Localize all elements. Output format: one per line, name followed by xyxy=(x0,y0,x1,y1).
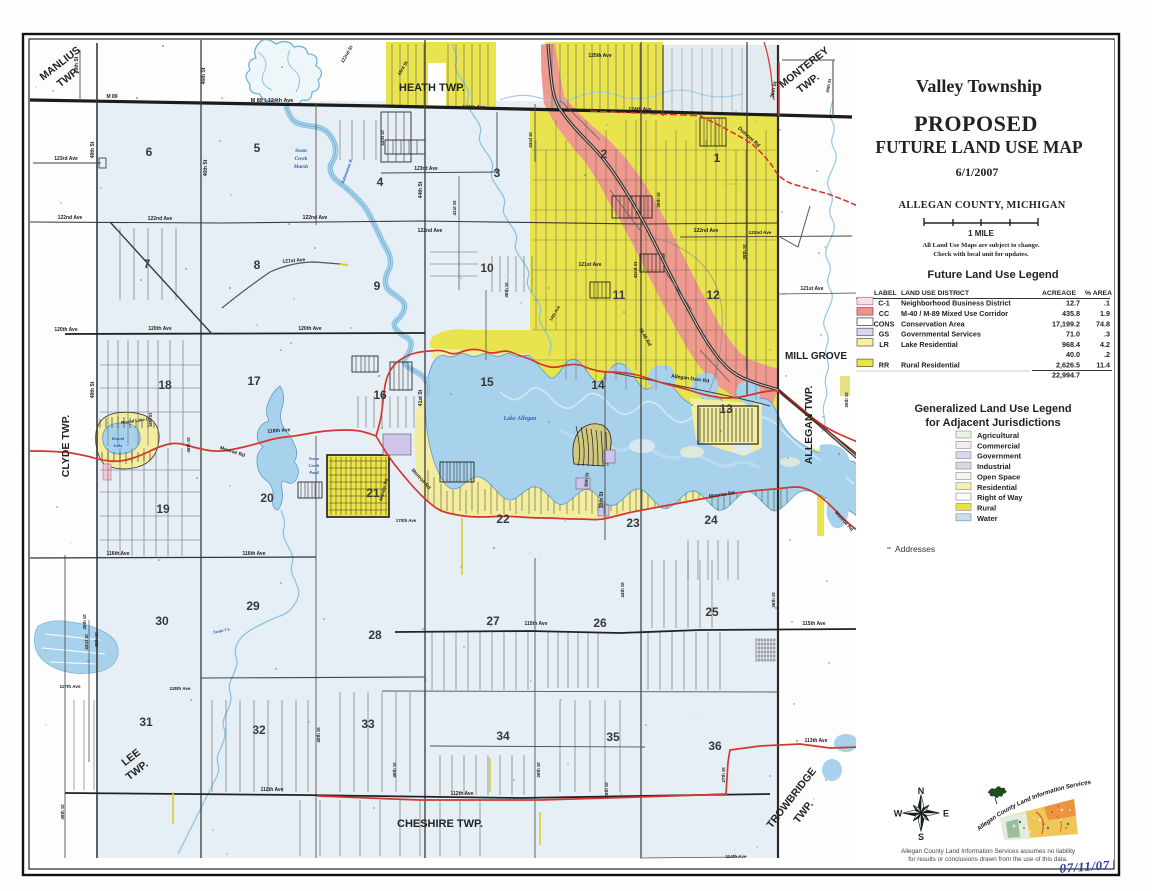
svg-text:40th St: 40th St xyxy=(504,282,509,298)
svg-text:46th St: 46th St xyxy=(201,67,207,84)
svg-text:ALLEGAN TWP.: ALLEGAN TWP. xyxy=(803,386,815,465)
svg-text:12: 12 xyxy=(706,288,720,302)
svg-text:Creek: Creek xyxy=(309,463,321,468)
svg-text:42nd St: 42nd St xyxy=(633,261,638,278)
svg-text:11.4: 11.4 xyxy=(1096,361,1110,370)
svg-text:122nd Ave: 122nd Ave xyxy=(148,216,173,222)
svg-text:M 89 L124th Ave: M 89 L124th Ave xyxy=(251,98,294,104)
svg-text:122nd Ave: 122nd Ave xyxy=(749,230,772,235)
svg-text:LR: LR xyxy=(879,340,889,349)
svg-text:20: 20 xyxy=(260,491,274,505)
svg-text:C-1: C-1 xyxy=(878,299,890,308)
svg-text:19: 19 xyxy=(156,502,170,516)
svg-text:37th St: 37th St xyxy=(721,767,726,783)
svg-text:123rd Ave: 123rd Ave xyxy=(414,166,438,172)
svg-text:34: 34 xyxy=(496,729,510,743)
svg-text:43rd St: 43rd St xyxy=(380,130,385,146)
svg-text:4: 4 xyxy=(377,175,384,189)
svg-text:RR: RR xyxy=(879,361,890,370)
svg-text:for Adjacent Jurisdictions: for Adjacent Jurisdictions xyxy=(925,417,1060,429)
svg-text:15: 15 xyxy=(480,375,494,389)
svg-text:40th St: 40th St xyxy=(316,727,321,743)
svg-text:ACREAGE: ACREAGE xyxy=(1042,290,1076,297)
svg-text:Pond: Pond xyxy=(309,470,319,475)
svg-text:45th St: 45th St xyxy=(82,614,87,630)
svg-text:E: E xyxy=(943,809,949,819)
svg-text:Round: Round xyxy=(112,436,125,441)
svg-text:17,199.2: 17,199.2 xyxy=(1052,319,1080,328)
svg-text:6/1/2007: 6/1/2007 xyxy=(956,165,999,179)
svg-text:71.0: 71.0 xyxy=(1066,330,1080,339)
svg-text:Swan: Swan xyxy=(309,456,320,461)
svg-text:121st Ave: 121st Ave xyxy=(579,262,602,268)
svg-text:Generalized Land Use Legend: Generalized Land Use Legend xyxy=(914,403,1071,415)
svg-text:CONS: CONS xyxy=(874,319,895,328)
svg-text:112th Ave: 112th Ave xyxy=(451,791,474,797)
svg-text:28: 28 xyxy=(368,628,382,642)
svg-text:115th Ave: 115th Ave xyxy=(803,621,826,627)
svg-text:Creek: Creek xyxy=(295,156,308,162)
svg-text:117th Ave: 117th Ave xyxy=(59,684,81,689)
svg-text:35th St: 35th St xyxy=(844,392,849,408)
svg-text:122nd Ave: 122nd Ave xyxy=(694,228,719,234)
svg-text:Rural: Rural xyxy=(977,503,996,512)
svg-text:Water: Water xyxy=(977,514,998,523)
svg-text:48th St: 48th St xyxy=(90,381,96,398)
svg-text:120th Ave: 120th Ave xyxy=(298,326,321,332)
svg-text:35: 35 xyxy=(606,730,620,744)
svg-text:11: 11 xyxy=(613,288,626,302)
svg-text:All Land Use Maps are subject: All Land Use Maps are subject to change. xyxy=(922,242,1039,249)
svg-text:Commercial: Commercial xyxy=(977,441,1020,450)
svg-text:46th St: 46th St xyxy=(203,159,209,176)
svg-text:LABEL: LABEL xyxy=(874,290,897,297)
svg-text:for results or conclusions dra: for results or conclusions drawn from th… xyxy=(908,856,1068,863)
svg-text:PROPOSED: PROPOSED xyxy=(914,111,1038,136)
svg-text:1 MILE: 1 MILE xyxy=(968,229,994,238)
svg-text:10: 10 xyxy=(480,261,494,275)
svg-text:22: 22 xyxy=(496,512,510,526)
svg-text:4.2: 4.2 xyxy=(1100,340,1110,349)
svg-text:968.4: 968.4 xyxy=(1062,340,1080,349)
svg-text:435.8: 435.8 xyxy=(1062,309,1080,318)
svg-text:114th Ave: 114th Ave xyxy=(725,854,747,859)
svg-text:CHESHIRE TWP.: CHESHIRE TWP. xyxy=(397,818,483,830)
svg-text:26: 26 xyxy=(593,616,607,630)
svg-text:Industrial: Industrial xyxy=(977,462,1011,471)
svg-text:14: 14 xyxy=(591,378,605,392)
svg-text:Allegan County Land Informatio: Allegan County Land Information Services… xyxy=(901,848,1076,855)
svg-text:Lake: Lake xyxy=(112,443,122,448)
svg-text:Marsh: Marsh xyxy=(293,164,308,170)
svg-text:.1: .1 xyxy=(1104,299,1110,308)
svg-text:38th St: 38th St xyxy=(742,244,747,260)
svg-text:Check with local unit for upda: Check with local unit for updates. xyxy=(933,251,1028,258)
svg-text:Open Space: Open Space xyxy=(977,472,1020,481)
svg-text:W: W xyxy=(894,809,903,819)
svg-text:8: 8 xyxy=(254,258,261,272)
svg-text:Conservation Area: Conservation Area xyxy=(901,319,966,328)
svg-text:16: 16 xyxy=(373,388,387,402)
svg-text:3: 3 xyxy=(494,166,501,180)
svg-text:120th Ave: 120th Ave xyxy=(54,327,77,333)
svg-text:43rd St: 43rd St xyxy=(528,132,533,148)
svg-text:12.7: 12.7 xyxy=(1066,299,1080,308)
svg-text:123rd Ave: 123rd Ave xyxy=(54,156,78,162)
svg-text:M 89: M 89 xyxy=(106,94,117,100)
svg-text:MILL GROVE: MILL GROVE xyxy=(785,351,847,362)
svg-text:74.8: 74.8 xyxy=(1096,319,1110,328)
svg-text:124th Ave: 124th Ave xyxy=(628,107,651,113)
svg-text:18: 18 xyxy=(158,378,172,392)
svg-text:49th St: 49th St xyxy=(60,804,65,820)
svg-text:30: 30 xyxy=(155,614,169,628)
svg-text:36: 36 xyxy=(708,739,722,753)
svg-text:CLYDE TWP.: CLYDE TWP. xyxy=(60,415,72,478)
svg-text:49th St: 49th St xyxy=(74,56,80,73)
svg-text:N: N xyxy=(918,786,925,796)
svg-text:122nd Ave: 122nd Ave xyxy=(303,215,328,221)
svg-text:LAND USE DISTRICT: LAND USE DISTRICT xyxy=(901,290,970,297)
svg-text:Agricultural: Agricultural xyxy=(977,431,1019,440)
svg-text:Lake Allegan: Lake Allegan xyxy=(503,416,538,422)
svg-text:Governmental Services: Governmental Services xyxy=(901,330,981,339)
svg-text:40th St: 40th St xyxy=(392,762,397,778)
svg-text:1.9: 1.9 xyxy=(1100,309,1110,318)
svg-text:39th St: 39th St xyxy=(536,762,541,778)
svg-text:Residential: Residential xyxy=(977,483,1017,492)
svg-text:48th St: 48th St xyxy=(94,632,99,648)
svg-text:44th St: 44th St xyxy=(620,582,625,598)
svg-text:41st St: 41st St xyxy=(418,389,424,406)
svg-text:125th Ave: 125th Ave xyxy=(588,53,611,59)
svg-text:CC: CC xyxy=(879,309,889,318)
svg-text:31: 31 xyxy=(139,715,153,729)
svg-text:Future Land Use Legend: Future Land Use Legend xyxy=(927,269,1058,281)
svg-text:122nd Ave: 122nd Ave xyxy=(418,228,443,234)
svg-text:GS: GS xyxy=(879,330,890,339)
svg-text:1: 1 xyxy=(714,151,721,165)
svg-text:116th Ave: 116th Ave xyxy=(243,551,266,557)
svg-text:32: 32 xyxy=(252,723,266,737)
svg-text:6: 6 xyxy=(146,145,153,159)
svg-text:38th St: 38th St xyxy=(599,491,605,508)
svg-text:Valley Township: Valley Township xyxy=(916,76,1042,96)
svg-text:Right of Way: Right of Way xyxy=(977,493,1023,502)
svg-text:5: 5 xyxy=(254,141,261,155)
svg-text:38th St: 38th St xyxy=(604,782,609,798)
svg-text:120th Ave: 120th Ave xyxy=(148,326,171,332)
svg-text:170th Ave: 170th Ave xyxy=(396,518,417,523)
svg-text:17: 17 xyxy=(247,374,261,388)
svg-text:46th St: 46th St xyxy=(186,437,191,453)
svg-text:38th St: 38th St xyxy=(656,192,661,208)
svg-text:.2: .2 xyxy=(1104,350,1110,359)
svg-text:M-40 / M-89 Mixed Use Corridor: M-40 / M-89 Mixed Use Corridor xyxy=(901,309,1008,318)
svg-text:22,994.7: 22,994.7 xyxy=(1052,371,1080,380)
svg-text:Lake Residential: Lake Residential xyxy=(901,340,958,349)
svg-text:44th St: 44th St xyxy=(418,181,424,198)
svg-text:Government: Government xyxy=(977,452,1022,461)
svg-text:121st Ave: 121st Ave xyxy=(801,286,824,292)
svg-text:23: 23 xyxy=(626,516,640,530)
svg-text:113th Ave: 113th Ave xyxy=(805,738,828,744)
svg-text:122nd Ave: 122nd Ave xyxy=(58,215,83,221)
svg-text:FUTURE LAND USE MAP: FUTURE LAND USE MAP xyxy=(875,137,1083,157)
svg-text:43rd St: 43rd St xyxy=(84,634,89,650)
svg-text:ALLEGAN COUNTY, MICHIGAN: ALLEGAN COUNTY, MICHIGAN xyxy=(898,200,1065,211)
svg-text:.3: .3 xyxy=(1104,330,1110,339)
svg-text:13: 13 xyxy=(719,402,733,416)
svg-text:9: 9 xyxy=(374,279,381,293)
svg-text:HEATH TWP.: HEATH TWP. xyxy=(399,82,465,94)
svg-text:24: 24 xyxy=(704,513,718,527)
svg-text:40.0: 40.0 xyxy=(1066,350,1080,359)
svg-text:S: S xyxy=(918,832,924,842)
svg-text:116th Ave: 116th Ave xyxy=(107,551,130,557)
svg-text:48th St: 48th St xyxy=(90,141,96,158)
svg-text:Swan: Swan xyxy=(295,148,307,154)
svg-text:36th St: 36th St xyxy=(771,592,776,608)
svg-text:41st St: 41st St xyxy=(452,200,457,216)
svg-text:7: 7 xyxy=(144,257,151,271)
svg-text:% AREA: % AREA xyxy=(1085,290,1112,297)
svg-text:112th Ave: 112th Ave xyxy=(261,787,284,793)
svg-text:29: 29 xyxy=(246,599,260,613)
svg-text:2,626.5: 2,626.5 xyxy=(1056,361,1080,370)
svg-text:Rural Residential: Rural Residential xyxy=(901,361,960,370)
svg-text:33: 33 xyxy=(361,717,375,731)
svg-text:27: 27 xyxy=(486,614,500,628)
svg-text:Neighborhood Business District: Neighborhood Business District xyxy=(901,299,1011,308)
svg-text:124th Ave: 124th Ave xyxy=(462,105,485,111)
svg-text:Addresses: Addresses xyxy=(895,544,935,554)
svg-text:25: 25 xyxy=(705,605,719,619)
svg-text:115th Ave: 115th Ave xyxy=(525,621,548,627)
svg-text:113th Ave: 113th Ave xyxy=(169,686,191,691)
svg-text:2: 2 xyxy=(601,147,608,161)
